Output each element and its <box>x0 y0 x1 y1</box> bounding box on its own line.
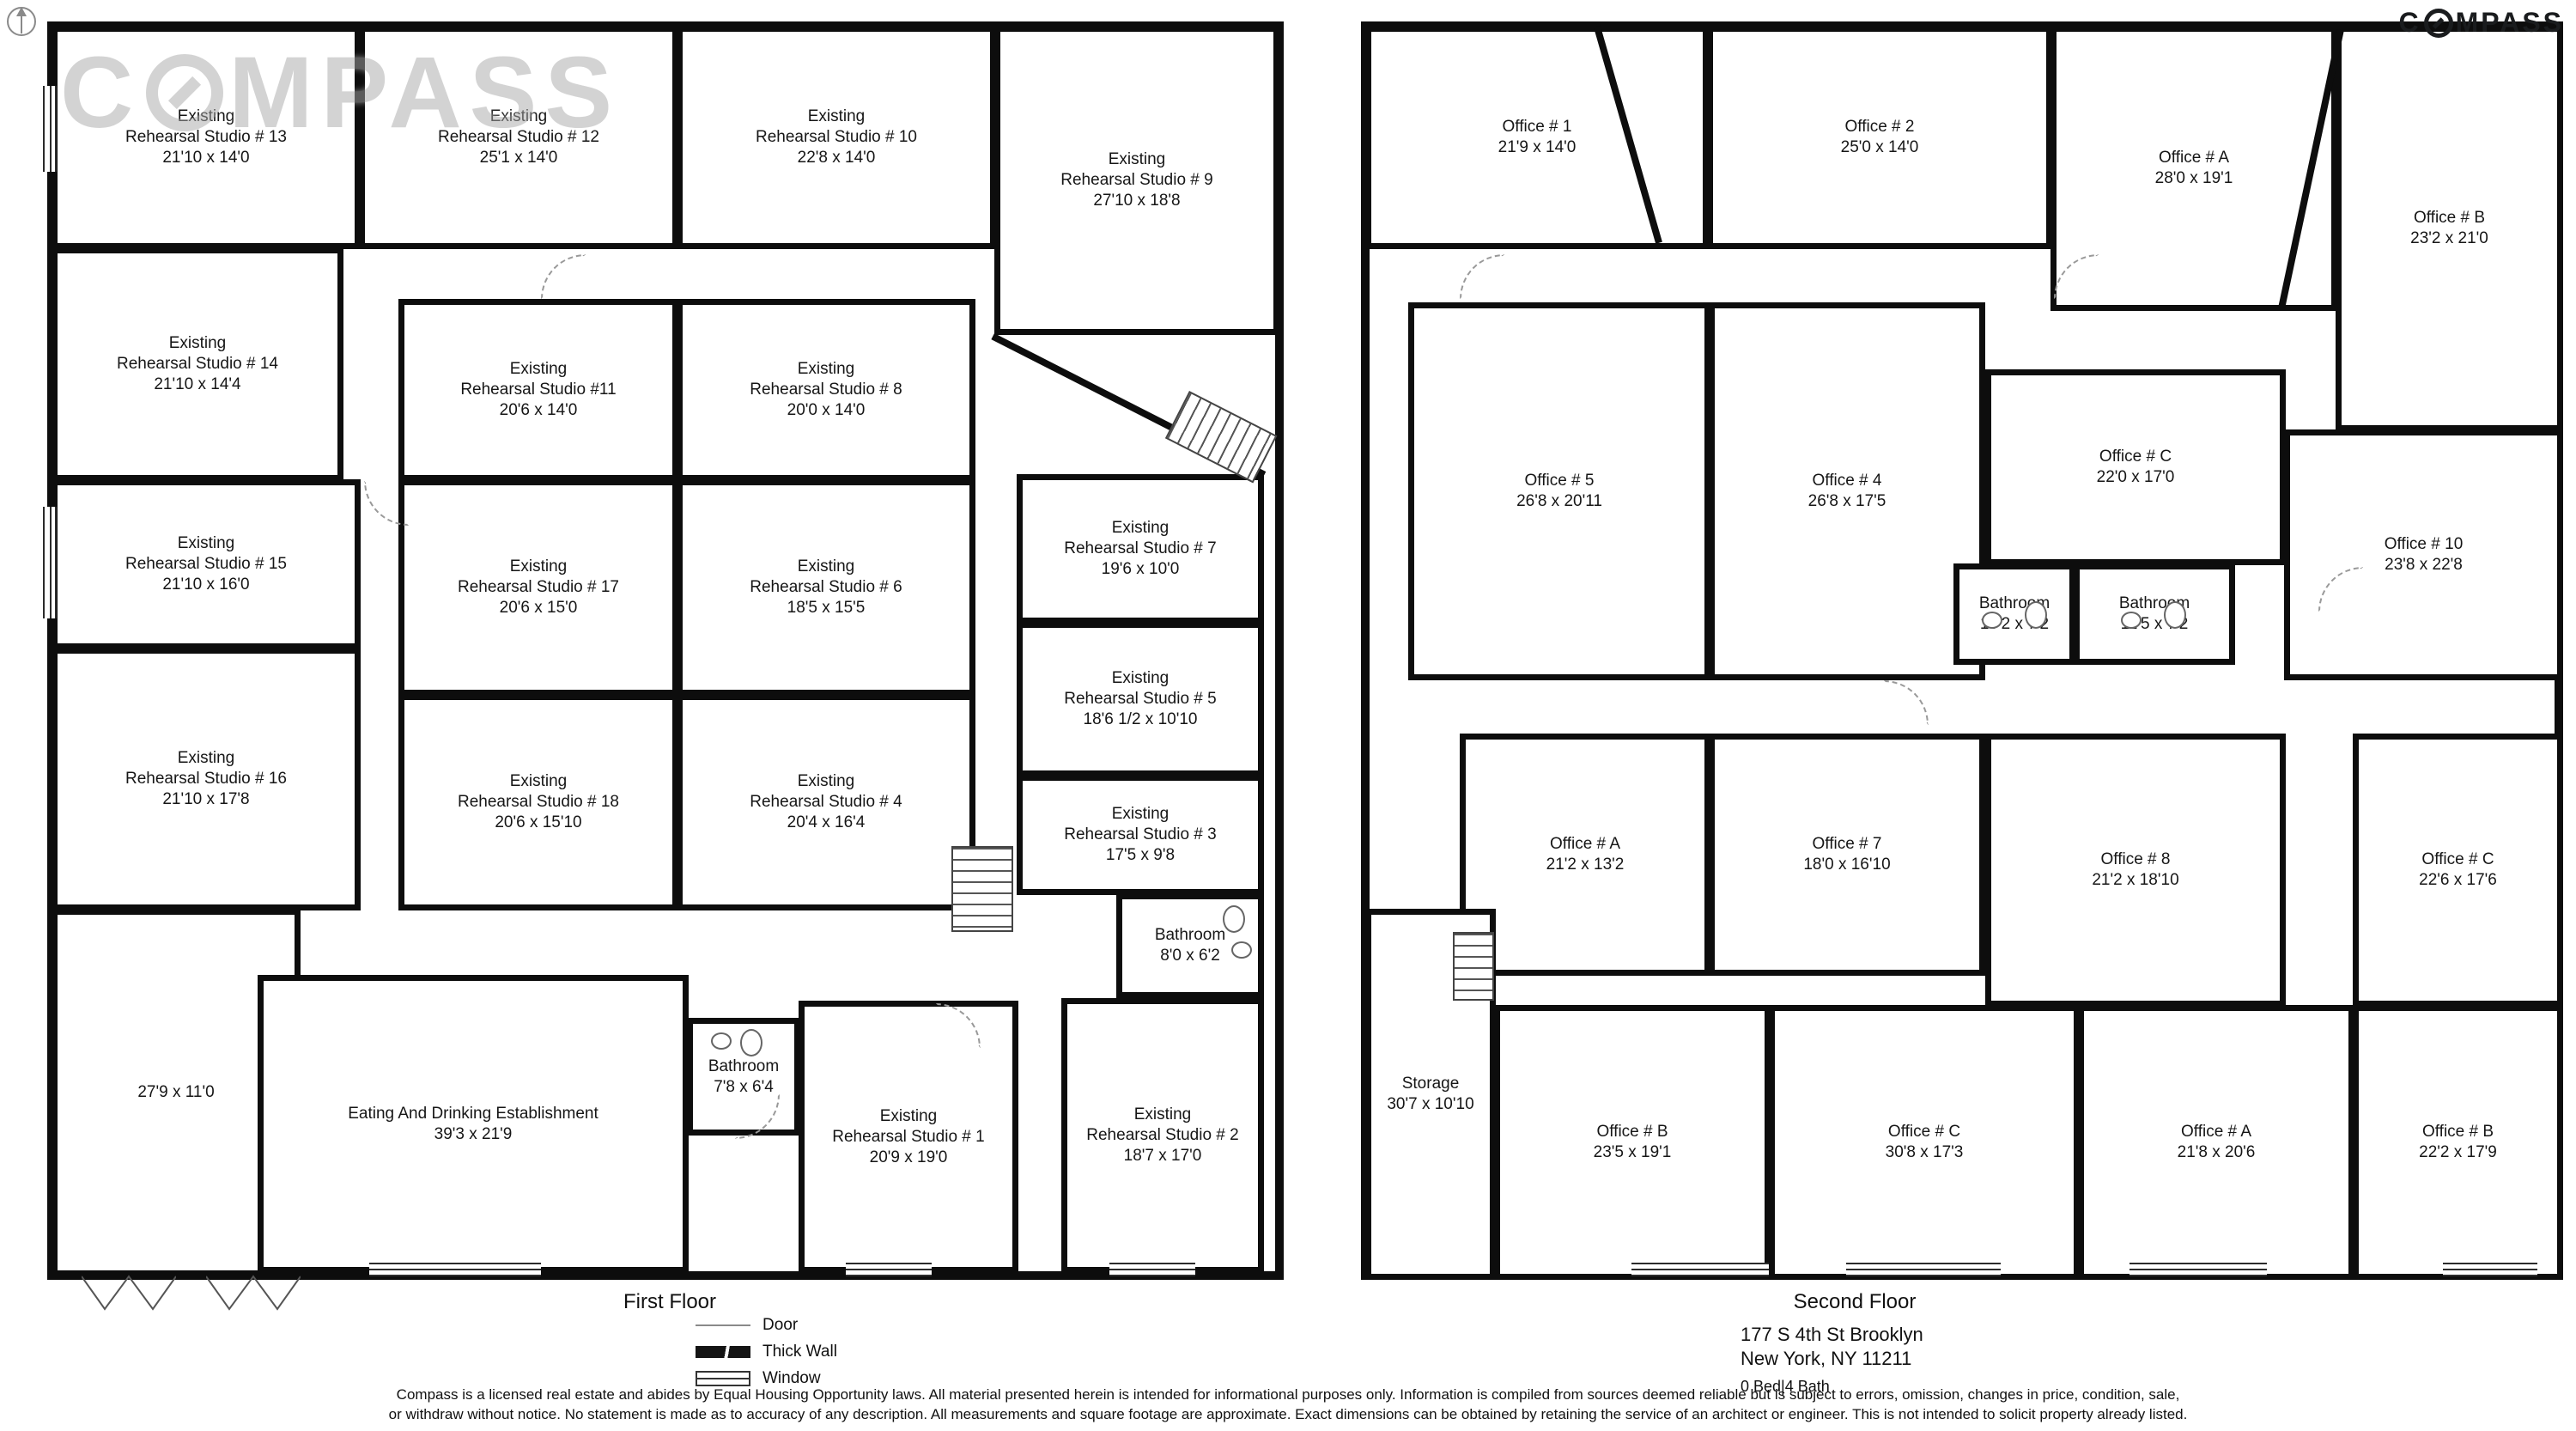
room-office-2: Office # 2 25'0 x 14'0 <box>1707 26 2052 249</box>
room-label: Office # 7 18'0 x 16'10 <box>1803 834 1890 875</box>
room-label: Office # B 23'5 x 19'1 <box>1594 1122 1672 1163</box>
room-label: Office # A 28'0 x 19'1 <box>2155 148 2233 189</box>
toilet-icon <box>1223 905 1245 933</box>
room-label: Office # A 21'8 x 20'6 <box>2178 1122 2256 1163</box>
room-label: Bathroom 7'8 x 6'4 <box>708 1057 779 1098</box>
entry-door-zigzag-icon <box>206 1275 301 1311</box>
room-label: Existing Rehearsal Studio # 7 19'6 x 10'… <box>1064 518 1216 580</box>
stairs <box>1453 932 1494 1001</box>
room-label: Office # C 30'8 x 17'3 <box>1886 1122 1964 1163</box>
room-rehearsal-studio-16: Existing Rehearsal Studio # 16 21'10 x 1… <box>52 648 361 910</box>
room-label: Office # 2 25'0 x 14'0 <box>1841 117 1919 158</box>
first-floor-title: First Floor <box>592 1290 747 1314</box>
legend-label: Thick Wall <box>762 1343 837 1361</box>
room-label: Existing Rehearsal Studio # 8 20'0 x 14'… <box>750 359 902 421</box>
room-rehearsal-studio-8: Existing Rehearsal Studio # 8 20'0 x 14'… <box>677 299 975 481</box>
room-office-b-top: Office # B 23'2 x 21'0 <box>2336 26 2563 431</box>
room-office-8: Office # 8 21'2 x 18'10 <box>1985 734 2286 1007</box>
room-rehearsal-studio-15: Existing Rehearsal Studio # 15 21'10 x 1… <box>52 479 361 649</box>
room-label: Office # 8 21'2 x 18'10 <box>2092 849 2178 891</box>
room-label: Office # C 22'0 x 17'0 <box>2097 447 2175 488</box>
room-label: Existing Rehearsal Studio # 16 21'10 x 1… <box>125 748 287 810</box>
room-office-7: Office # 7 18'0 x 16'10 <box>1709 734 1985 976</box>
room-rehearsal-studio-3: Existing Rehearsal Studio # 3 17'5 x 9'8 <box>1017 775 1264 895</box>
room-office-a-bottom: Office # A 21'8 x 20'6 <box>2078 1005 2354 1280</box>
logo-prefix: C <box>2398 7 2421 39</box>
room-bathroom-10-2-x-7-2: Bathroom 10'2 x 7'2 <box>1953 563 2075 665</box>
room-bathroom-11-5-x-7-2: Bathroom 11'5 x 7'2 <box>2074 563 2235 665</box>
room-office-4: Office # 4 26'8 x 17'5 <box>1709 302 1985 680</box>
second-floor-title: Second Floor <box>1760 1290 1949 1314</box>
room-office-c-right: Office # C 22'6 x 17'6 <box>2353 734 2563 1007</box>
window-symbol <box>846 1263 932 1276</box>
room-rehearsal-studio-10: Existing Rehearsal Studio # 10 22'8 x 14… <box>677 26 996 249</box>
window-symbol <box>1631 1263 1769 1276</box>
room-rehearsal-studio-7: Existing Rehearsal Studio # 7 19'6 x 10'… <box>1017 474 1264 624</box>
room-label: Office # 1 21'9 x 14'0 <box>1498 117 1577 158</box>
disclaimer-line-2: or withdraw without notice. No statement… <box>0 1404 2576 1424</box>
room-label: Office # 10 23'8 x 22'8 <box>2385 534 2464 575</box>
room-office-10: Office # 10 23'8 x 22'8 <box>2284 429 2563 680</box>
room-label: Office # B 23'2 x 21'0 <box>2410 208 2488 249</box>
window-symbol <box>1846 1263 2001 1276</box>
room-label: Existing Rehearsal Studio # 18 20'6 x 15… <box>458 771 619 833</box>
room-label: Existing Rehearsal Studio # 9 27'10 x 18… <box>1060 149 1212 211</box>
logo-suffix: MPASS <box>2456 7 2564 39</box>
sink-icon <box>1231 941 1252 959</box>
room-label: Office # 5 26'8 x 20'11 <box>1516 471 1602 512</box>
toilet-icon <box>740 1029 762 1057</box>
room-label: Existing Rehearsal Studio # 12 25'1 x 14… <box>438 107 599 168</box>
room-office-c-bottom: Office # C 30'8 x 17'3 <box>1769 1005 2080 1280</box>
room-office-b-bottom: Office # B 23'5 x 19'1 <box>1494 1005 1771 1280</box>
room-label: Eating And Drinking Establishment 39'3 x… <box>348 1104 598 1145</box>
floorplan-page: C MPASS C MPASS Existing Rehearsal Studi… <box>0 0 2576 1431</box>
sink-icon <box>711 1032 732 1050</box>
room-label: Bathroom 8'0 x 6'2 <box>1155 925 1225 966</box>
window-symbol <box>369 1263 541 1276</box>
room-label: Existing Rehearsal Studio # 2 18'7 x 17'… <box>1086 1105 1238 1166</box>
toilet-icon <box>2164 601 2186 629</box>
room-label: Existing Rehearsal Studio # 14 21'10 x 1… <box>117 333 278 395</box>
sink-icon <box>1982 612 2002 629</box>
disclaimer-line-1: Compass is a licensed real estate and ab… <box>0 1385 2576 1404</box>
room-label: Existing Rehearsal Studio # 1 20'9 x 19'… <box>832 1106 984 1168</box>
room-rehearsal-studio-4: Existing Rehearsal Studio # 4 20'4 x 16'… <box>677 694 975 910</box>
legend-item-door: Door <box>696 1316 837 1335</box>
room-rehearsal-studio-9: Existing Rehearsal Studio # 9 27'10 x 18… <box>994 26 1279 335</box>
window-symbol <box>2129 1263 2267 1276</box>
room-office-5: Office # 5 26'8 x 20'11 <box>1408 302 1710 680</box>
room-label: Office # A 21'2 x 13'2 <box>1546 834 1625 875</box>
room-rehearsal-studio-13: Existing Rehearsal Studio # 13 21'10 x 1… <box>52 26 361 249</box>
stairs <box>951 846 1013 932</box>
room-label: Existing Rehearsal Studio #11 20'6 x 14'… <box>460 359 616 421</box>
door-symbol-icon <box>696 1324 750 1326</box>
legend-label: Door <box>762 1316 798 1335</box>
room-label: Office # C 22'6 x 17'6 <box>2419 849 2497 891</box>
room-rehearsal-studio-17: Existing Rehearsal Studio # 17 20'6 x 15… <box>398 479 678 696</box>
room-office-a-mid: Office # A 21'2 x 13'2 <box>1460 734 1710 976</box>
room-label: Office # 4 26'8 x 17'5 <box>1808 471 1886 512</box>
room-label: Existing Rehearsal Studio # 10 22'8 x 14… <box>756 107 917 168</box>
room-label: Existing Rehearsal Studio # 13 21'10 x 1… <box>125 107 287 168</box>
legend-item-thick-wall: Thick Wall <box>696 1343 837 1361</box>
room-rehearsal-studio-12: Existing Rehearsal Studio # 12 25'1 x 14… <box>359 26 678 249</box>
window-symbol <box>43 507 57 618</box>
room-rehearsal-studio-1: Existing Rehearsal Studio # 1 20'9 x 19'… <box>799 1001 1018 1273</box>
room-label: Existing Rehearsal Studio # 15 21'10 x 1… <box>125 533 287 595</box>
compass-o-icon <box>2424 9 2453 38</box>
window-symbol <box>43 86 57 172</box>
room-label: 27'9 x 11'0 <box>137 1082 214 1103</box>
sink-icon <box>2121 612 2142 629</box>
room-rehearsal-studio-14: Existing Rehearsal Studio # 14 21'10 x 1… <box>52 247 343 481</box>
room-label: Existing Rehearsal Studio # 4 20'4 x 16'… <box>750 771 902 833</box>
room-label: Existing Rehearsal Studio # 3 17'5 x 9'8 <box>1064 804 1216 866</box>
room-rehearsal-studio-11: Existing Rehearsal Studio #11 20'6 x 14'… <box>398 299 678 481</box>
room-office-b-bottomright: Office # B 22'2 x 17'9 <box>2353 1005 2563 1280</box>
room-office-c-top: Office # C 22'0 x 17'0 <box>1985 369 2286 565</box>
disclaimer: Compass is a licensed real estate and ab… <box>0 1385 2576 1424</box>
compass-logo: C MPASS <box>2398 7 2564 39</box>
room-rehearsal-studio-5: Existing Rehearsal Studio # 5 18'6 1/2 x… <box>1017 622 1264 776</box>
window-symbol <box>2443 1263 2537 1276</box>
address-line-1: 177 S 4th St Brooklyn <box>1741 1323 1923 1347</box>
room-label: Storage 30'7 x 10'10 <box>1387 1074 1473 1115</box>
thick-wall-symbol-icon <box>696 1346 750 1358</box>
room-office-1: Office # 1 21'9 x 14'0 <box>1365 26 1709 249</box>
address-line-2: New York, NY 11211 <box>1741 1347 1923 1371</box>
room-label: Existing Rehearsal Studio # 5 18'6 1/2 x… <box>1064 668 1216 730</box>
room-rehearsal-studio-6: Existing Rehearsal Studio # 6 18'5 x 15'… <box>677 479 975 696</box>
room-eating-and-drinking-establishment: Eating And Drinking Establishment 39'3 x… <box>258 975 689 1273</box>
room-label: Existing Rehearsal Studio # 17 20'6 x 15… <box>458 557 619 618</box>
north-compass-icon <box>5 5 38 38</box>
room-label: Existing Rehearsal Studio # 6 18'5 x 15'… <box>750 557 902 618</box>
room-label: Office # B 22'2 x 17'9 <box>2419 1122 2497 1163</box>
entry-door-zigzag-icon <box>82 1275 176 1311</box>
room-rehearsal-studio-2: Existing Rehearsal Studio # 2 18'7 x 17'… <box>1061 998 1264 1273</box>
toilet-icon <box>2025 601 2047 629</box>
window-symbol <box>1109 1263 1195 1276</box>
room-rehearsal-studio-18: Existing Rehearsal Studio # 18 20'6 x 15… <box>398 694 678 910</box>
